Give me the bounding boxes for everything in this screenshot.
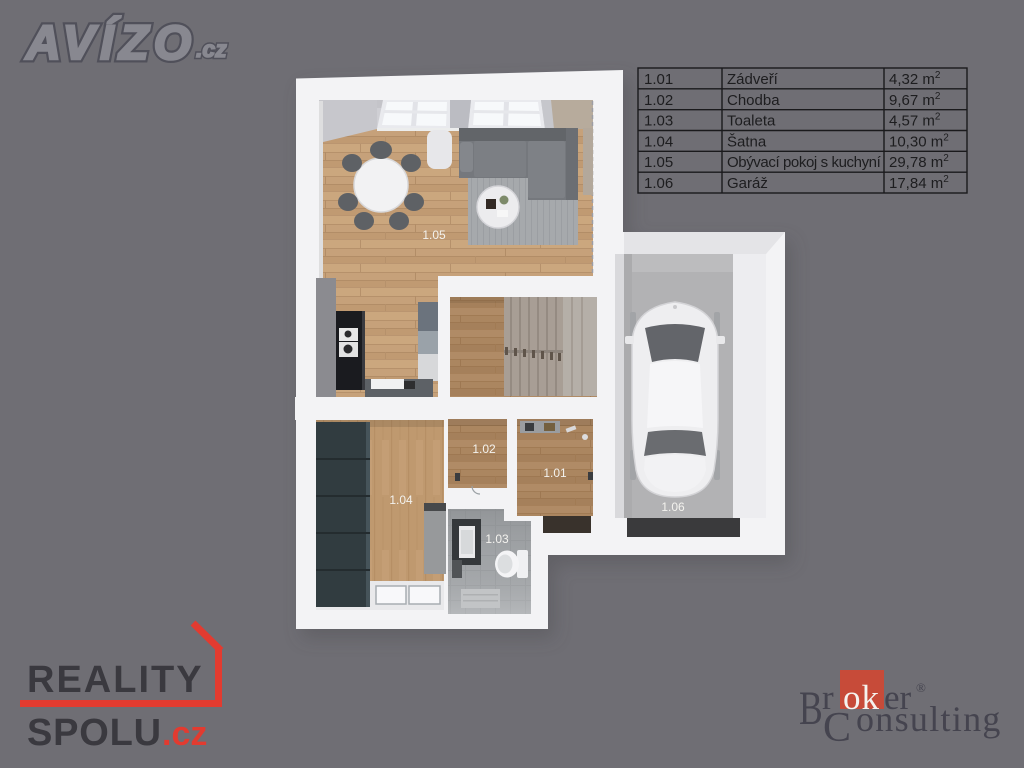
svg-text:4,57 m2: 4,57 m2 bbox=[889, 112, 941, 130]
svg-text:1.03: 1.03 bbox=[644, 113, 673, 130]
svg-text:.cz: .cz bbox=[196, 36, 227, 62]
svg-text:1.06: 1.06 bbox=[644, 175, 673, 192]
svg-text:1.05: 1.05 bbox=[422, 228, 446, 242]
svg-text:onsulting: onsulting bbox=[856, 699, 1002, 739]
svg-text:C: C bbox=[823, 705, 851, 751]
svg-text:1.01: 1.01 bbox=[543, 466, 567, 480]
svg-text:Obývací pokoj s kuchyní: Obývací pokoj s kuchyní bbox=[727, 154, 882, 171]
svg-text:.cz: .cz bbox=[162, 715, 207, 753]
svg-text:AVÍZO: AVÍZO bbox=[25, 16, 197, 70]
svg-text:SPOLU: SPOLU bbox=[27, 712, 162, 754]
svg-text:1.04: 1.04 bbox=[644, 133, 673, 150]
svg-text:1.02: 1.02 bbox=[644, 92, 673, 109]
svg-text:17,84 m2: 17,84 m2 bbox=[889, 174, 949, 192]
svg-text:Toaleta: Toaleta bbox=[727, 113, 776, 130]
svg-text:4,32 m2: 4,32 m2 bbox=[889, 70, 941, 88]
svg-text:1.05: 1.05 bbox=[644, 154, 673, 171]
svg-text:10,30 m2: 10,30 m2 bbox=[889, 132, 949, 150]
svg-text:REALITY: REALITY bbox=[27, 659, 204, 701]
svg-text:9,67 m2: 9,67 m2 bbox=[889, 91, 941, 109]
svg-text:1.02: 1.02 bbox=[472, 442, 496, 456]
svg-text:1.04: 1.04 bbox=[389, 493, 413, 507]
svg-text:29,78 m2: 29,78 m2 bbox=[889, 153, 949, 171]
svg-text:1.06: 1.06 bbox=[661, 500, 685, 514]
svg-text:Garáž: Garáž bbox=[727, 175, 768, 192]
svg-text:Zádveří: Zádveří bbox=[727, 71, 779, 88]
svg-text:1.03: 1.03 bbox=[485, 532, 509, 546]
svg-text:Šatna: Šatna bbox=[727, 133, 767, 150]
svg-text:B: B bbox=[799, 682, 823, 735]
svg-text:Chodba: Chodba bbox=[727, 92, 780, 109]
svg-text:1.01: 1.01 bbox=[644, 71, 673, 88]
svg-text:®: ® bbox=[916, 680, 926, 695]
